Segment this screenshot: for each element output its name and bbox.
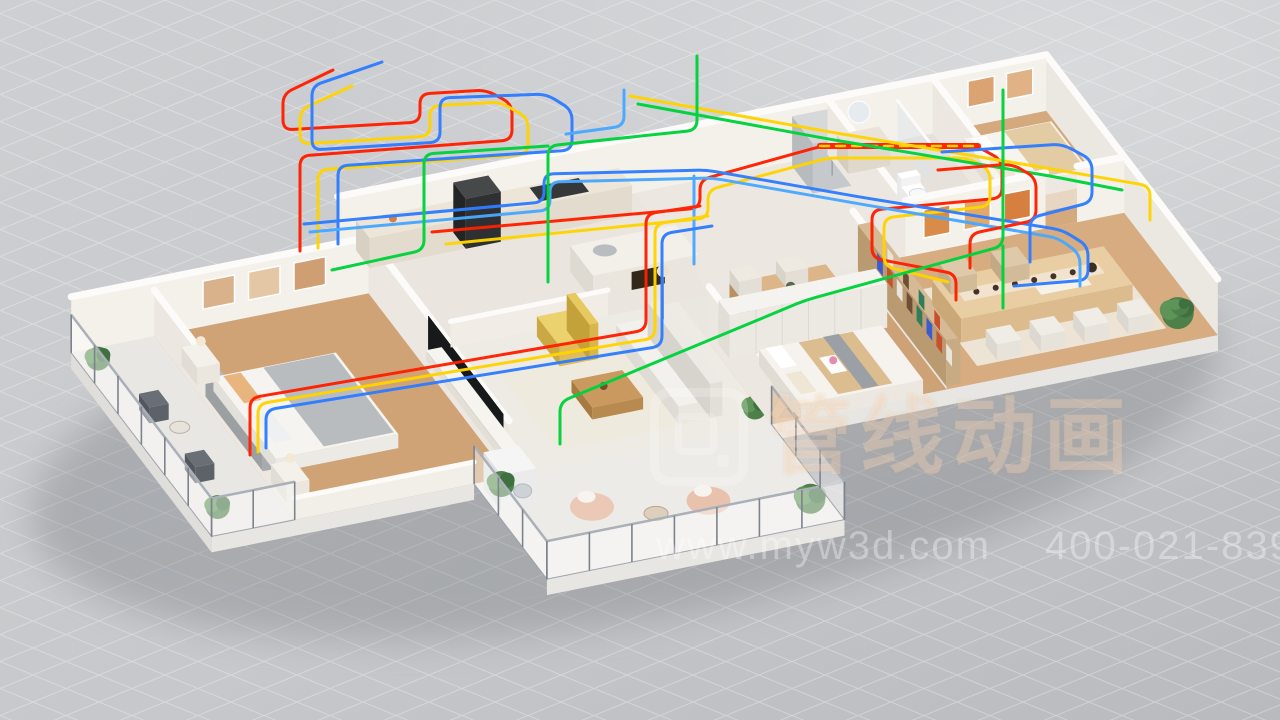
render-viewport: 管线动画 www.myw3d.com 400-021-8398 [0,0,1280,720]
apartment-3d-render [0,0,1280,720]
